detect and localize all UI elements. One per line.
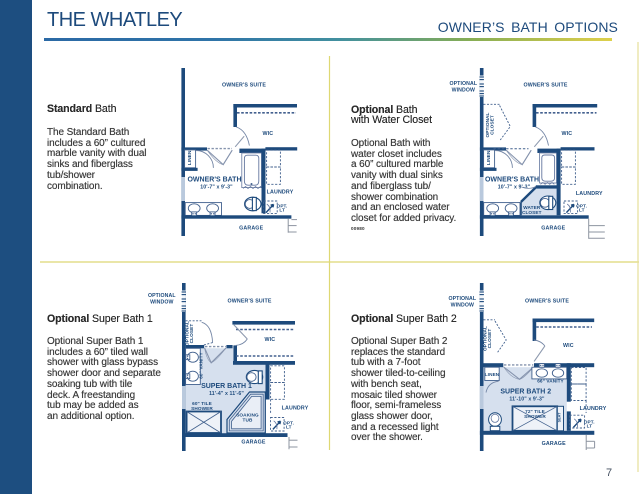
svg-text:LINEN: LINEN (486, 150, 491, 165)
svg-text:LT: LT (587, 423, 593, 428)
svg-text:GARAGE: GARAGE (241, 440, 265, 446)
svg-text:11'-10" x 9'-3": 11'-10" x 9'-3" (509, 396, 545, 402)
svg-text:LAUNDRY: LAUNDRY (580, 406, 607, 412)
svg-text:OWNER'S SUITE: OWNER'S SUITE (227, 299, 271, 305)
svg-text:WIC: WIC (265, 337, 276, 343)
svg-text:LINEN: LINEN (187, 150, 192, 165)
svg-text:LT: LT (286, 424, 292, 429)
svg-text:OWNER'S BATH: OWNER'S BATH (187, 176, 241, 183)
svg-text:WINDOW: WINDOW (451, 303, 474, 309)
svg-text:OWNER'S SUITE: OWNER'S SUITE (523, 83, 567, 89)
svg-text:11'-4" x 11'-6": 11'-4" x 11'-6" (209, 391, 244, 397)
svg-text:OWNER'S SUITE: OWNER'S SUITE (222, 83, 266, 89)
svg-text:WINDOW: WINDOW (150, 299, 173, 305)
svg-text:OWNER'S SUITE: OWNER'S SUITE (525, 299, 569, 305)
svg-text:LT: LT (279, 207, 285, 212)
svg-text:WINDOW: WINDOW (452, 87, 475, 93)
svg-text:TUB: TUB (243, 418, 253, 423)
svg-text:WIC: WIC (263, 131, 274, 137)
svg-text:LAUNDRY: LAUNDRY (576, 191, 603, 197)
svg-text:CLOSET: CLOSET (489, 115, 494, 135)
svg-text:WIC: WIC (562, 131, 573, 137)
svg-text:SUPER BATH 2: SUPER BATH 2 (500, 389, 551, 396)
svg-text:SEAT: SEAT (557, 412, 561, 423)
svg-text:CLOSET: CLOSET (522, 210, 542, 215)
svg-text:10'-7" x 9'-3": 10'-7" x 9'-3" (498, 185, 531, 191)
svg-text:OWNER'S BATH: OWNER'S BATH (485, 176, 539, 183)
svg-text:OPTIONAL: OPTIONAL (148, 293, 176, 299)
svg-text:CLOSET: CLOSET (487, 329, 492, 349)
svg-text:SHOWER: SHOWER (524, 414, 546, 419)
svg-text:10'-7" x 9'-3": 10'-7" x 9'-3" (200, 185, 233, 191)
svg-text:LT: LT (579, 207, 585, 212)
svg-text:LINEN: LINEN (485, 372, 500, 377)
svg-text:SHOWER: SHOWER (191, 406, 213, 411)
svg-text:60" VANITY: 60" VANITY (198, 351, 203, 378)
svg-text:OPTIONAL: OPTIONAL (449, 81, 477, 87)
svg-text:GARAGE: GARAGE (542, 441, 566, 447)
svg-text:LAUNDRY: LAUNDRY (282, 406, 309, 412)
svg-text:CLOSET: CLOSET (189, 324, 194, 344)
svg-text:WIC: WIC (563, 343, 574, 349)
svg-text:OPTIONAL: OPTIONAL (448, 296, 476, 302)
svg-text:GARAGE: GARAGE (239, 226, 263, 232)
svg-text:66" VANITY: 66" VANITY (537, 378, 564, 383)
svg-text:LAUNDRY: LAUNDRY (267, 190, 294, 196)
svg-text:SUPER BATH 1: SUPER BATH 1 (201, 383, 252, 390)
svg-text:GARAGE: GARAGE (541, 226, 565, 232)
